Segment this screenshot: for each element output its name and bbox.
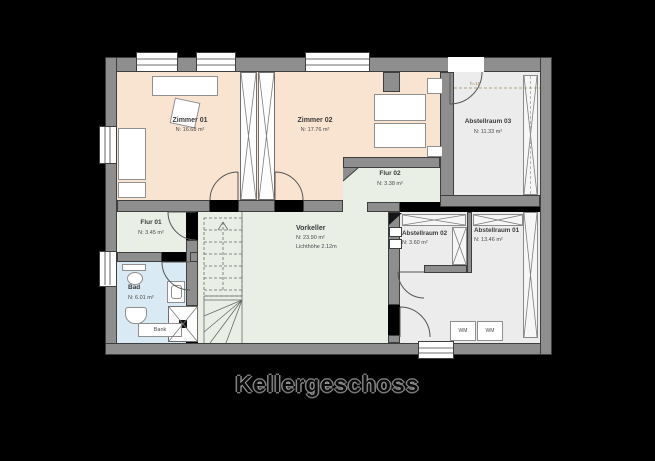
vorkeller-note: Lichthöhe 2.12m <box>296 245 376 251</box>
window-bottom <box>418 341 454 359</box>
washing-machine-2: WM <box>477 321 503 341</box>
shelf-abstellraum01-top <box>473 214 523 226</box>
wall-right <box>540 57 552 355</box>
washing-machine-1: WM <box>450 321 476 341</box>
bad-area: N: 6.01 m² <box>128 296 178 302</box>
room-label-abstellraum03: Abstellraum 03 N: 11.33 m² <box>448 119 528 135</box>
abstellraum02-area: N: 3.60 m² <box>402 241 468 247</box>
wall-abstellraum03-bottom <box>440 195 540 207</box>
wall-vorkeller-right-a <box>388 212 400 305</box>
shelf-abstellraum02-top <box>402 214 466 226</box>
wall-abstellraum02-bottom <box>424 265 467 273</box>
flur02-name: Flur 02 <box>355 171 425 178</box>
plan-title: Kellergeschoss <box>0 371 655 398</box>
flur01-area: N: 3.45 m² <box>121 231 181 237</box>
window-left-1 <box>99 126 117 164</box>
shelf-abstellraum03 <box>523 75 538 195</box>
room-label-zimmer02: Zimmer 02 N: 17.76 m² <box>275 117 355 134</box>
wall-bad-right <box>186 240 198 306</box>
wardrobe-zimmer01 <box>152 76 218 96</box>
wall-bad-top-a <box>117 252 162 262</box>
flur02-area: N: 3.38 m² <box>355 182 425 188</box>
wall-flur02-bottom <box>367 202 400 212</box>
bed2-zimmer02 <box>374 123 426 148</box>
wall-vorkeller-right-b <box>388 335 400 343</box>
bench-label: Bank <box>139 328 181 334</box>
bench: Bank <box>138 323 182 337</box>
abstellraum01-name: Abstellraum 01 <box>474 228 540 234</box>
zimmer02-name: Zimmer 02 <box>275 117 355 124</box>
shaft-1 <box>240 72 257 200</box>
wall-bad-top-b <box>190 252 198 262</box>
floor-flur02-passage <box>343 202 367 212</box>
bad-name: Bad <box>128 285 178 292</box>
washing-machine-2-label: WM <box>478 329 502 334</box>
abstellraum02-name: Abstellraum 02 <box>402 231 468 237</box>
door-opening-abstellraum03 <box>448 57 484 72</box>
zimmer01-area: N: 16.68 m² <box>150 128 230 134</box>
bed-zimmer01 <box>118 128 146 180</box>
toilet-tank <box>122 264 146 271</box>
abstellraum01-area: N: 13.46 m² <box>474 238 540 244</box>
nightstand-zimmer01 <box>118 182 146 198</box>
room-label-bad: Bad N: 6.01 m² <box>128 285 178 301</box>
window-top-2 <box>196 52 236 72</box>
electrical-box-1 <box>389 227 402 237</box>
height-marker-label: h=15 <box>470 81 480 86</box>
wall-zimmer-bottom-b <box>238 200 275 212</box>
nightstand1-zimmer02 <box>427 78 443 94</box>
abstellraum03-area: N: 11.33 m² <box>448 130 528 136</box>
shaft-2 <box>258 72 275 200</box>
room-label-abstellraum02: Abstellraum 02 N: 3.60 m² <box>402 231 468 247</box>
zimmer02-area: N: 17.76 m² <box>275 128 355 134</box>
zimmer01-name: Zimmer 01 <box>150 117 230 124</box>
nightstand2-zimmer02 <box>427 146 443 157</box>
wall-zimmer02-flur02 <box>343 157 440 168</box>
vorkeller-area: N: 23.90 m² <box>296 236 376 242</box>
wall-left <box>105 57 117 355</box>
room-label-zimmer01: Zimmer 01 N: 16.68 m² <box>150 117 230 134</box>
flur01-name: Flur 01 <box>121 220 181 227</box>
wall-zimmer-bottom-a <box>117 200 210 212</box>
abstellraum03-name: Abstellraum 03 <box>448 119 528 126</box>
room-label-abstellraum01: Abstellraum 01 N: 13.46 m² <box>474 228 540 244</box>
window-top-3 <box>305 52 370 72</box>
washing-machine-1-label: WM <box>451 329 475 334</box>
room-label-vorkeller: Vorkeller N: 23.90 m² Lichthöhe 2.12m <box>296 225 376 250</box>
window-top-1 <box>136 52 178 72</box>
window-left-2 <box>99 251 117 287</box>
wall-bottom <box>105 343 552 355</box>
floor-plan-canvas: Bank WM WM <box>0 0 655 461</box>
bed1-zimmer02 <box>374 94 426 121</box>
room-label-flur02: Flur 02 N: 3.38 m² <box>355 171 425 187</box>
room-label-flur01: Flur 01 N: 3.45 m² <box>121 220 181 236</box>
wall-pier-zimmer02 <box>383 72 400 92</box>
electrical-box-2 <box>389 239 402 249</box>
vorkeller-name: Vorkeller <box>296 225 376 232</box>
wall-zimmer-bottom-c <box>303 200 343 212</box>
